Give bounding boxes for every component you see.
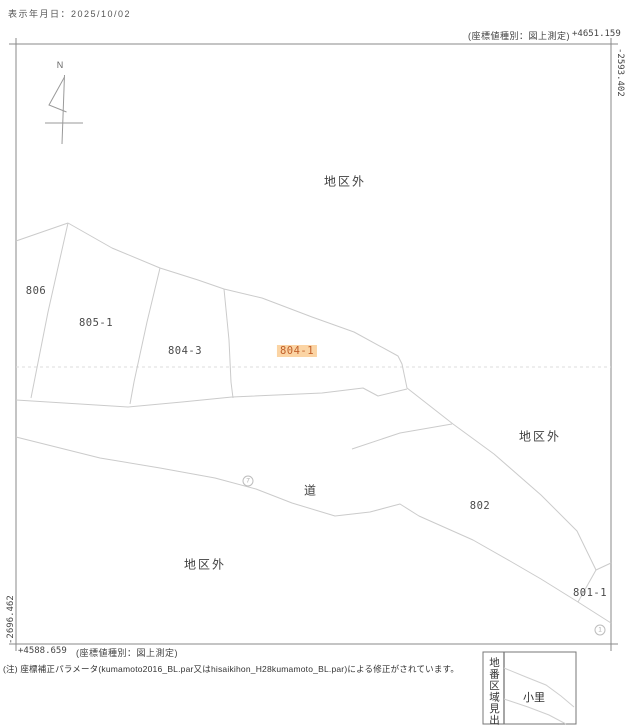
coordinate-x-top-right: +4651.159: [572, 29, 621, 39]
outside-district-label-right: 地区外: [519, 428, 561, 445]
north-label: N: [57, 60, 64, 70]
circled-marker-1: 1: [595, 625, 606, 636]
parcel-label-805-1[interactable]: 805-1: [79, 317, 113, 329]
road-label: 道: [304, 482, 316, 499]
parcel-label-806[interactable]: 806: [26, 285, 46, 297]
parcel-label-802[interactable]: 802: [470, 500, 490, 512]
coordinate-y-right: -2593.402: [615, 48, 625, 97]
coordinate-y-left: -2696.462: [6, 595, 16, 644]
parcel-label-804-1-highlighted[interactable]: 804-1: [277, 345, 317, 357]
outside-district-label-top: 地区外: [324, 173, 366, 190]
parcel-label-804-3[interactable]: 804-3: [168, 345, 202, 357]
outside-district-label-bottom: 地区外: [184, 556, 226, 573]
header-date: 表示年月日：2025/10/02: [8, 7, 131, 20]
coordinate-x-bottom-left: +4588.659: [18, 646, 67, 656]
north-arrow-icon: [45, 75, 83, 144]
cadastral-map-canvas: [0, 0, 640, 726]
legend-title: 地番区域見出: [487, 657, 502, 723]
parcel-label-801-1[interactable]: 801-1: [573, 587, 607, 599]
parcel-boundaries: [16, 223, 611, 623]
circled-marker-7: 7: [243, 476, 254, 487]
legend-area-name: 小里: [523, 689, 545, 705]
coordinate-type-note-bottom: (座標値種別：図上測定): [76, 646, 178, 659]
coordinate-type-note-top: (座標値種別：図上測定): [468, 29, 570, 42]
correction-parameter-note: (注) 座標補正パラメータ(kumamoto2016_BL.par又はhisai…: [3, 663, 459, 675]
